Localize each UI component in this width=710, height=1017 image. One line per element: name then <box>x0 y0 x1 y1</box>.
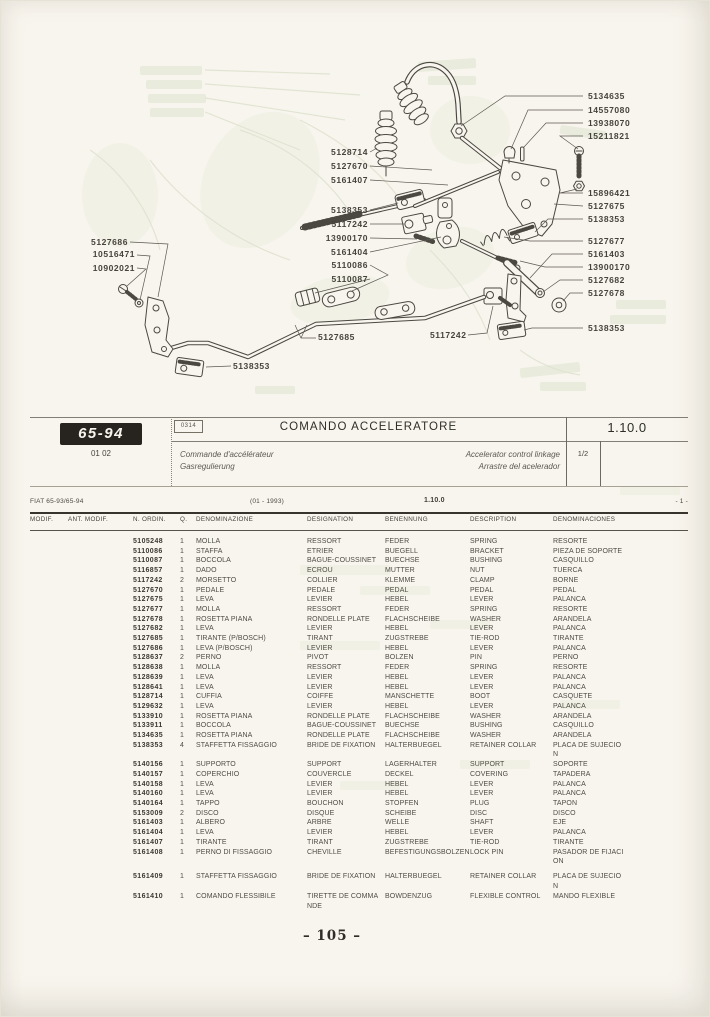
cell-q: 1 <box>180 712 196 722</box>
cell-q: 1 <box>180 892 196 911</box>
cell-ant <box>68 576 133 586</box>
cell-fr: TIRANT <box>307 634 385 644</box>
table-row: 51287141CUFFIACOIFFEMANSCHETTEBOOTCASQUE… <box>30 692 688 702</box>
section-number: 1.10.0 <box>566 420 688 435</box>
subtitle-spanish: Arrastre del acelerador <box>330 462 560 471</box>
cell-q: 4 <box>180 741 196 760</box>
cell-mod <box>30 547 68 557</box>
section-ref: 1.10.0 <box>424 497 445 504</box>
cell-q: 1 <box>180 537 196 547</box>
cell-de: SCHEIBE <box>385 809 470 819</box>
cell-n: 5105248 <box>133 537 180 547</box>
cell-n: 5134635 <box>133 731 180 741</box>
table-row: 51172422MORSETTOCOLLIERKLEMMECLAMPBORNE <box>30 576 688 586</box>
ghost-mark <box>620 487 680 495</box>
cell-n: 5161404 <box>133 828 180 838</box>
cell-es: RESORTE <box>553 605 629 615</box>
header-benennung: BENENNUNG <box>385 516 470 523</box>
cell-mod <box>30 848 68 867</box>
cell-en: PEDAL <box>470 586 553 596</box>
title-block-top-rule <box>30 417 688 418</box>
part-number-label: 5134635 <box>588 92 625 101</box>
cell-de: ZUGSTREBE <box>385 838 470 848</box>
cell-it: LEVA <box>196 702 307 712</box>
cell-q: 1 <box>180 721 196 731</box>
cell-es: PERNO <box>553 653 629 663</box>
cell-en: LEVER <box>470 673 553 683</box>
cell-de: HEBEL <box>385 624 470 634</box>
part-number-label: 5161403 <box>588 250 625 259</box>
cell-ant <box>68 828 133 838</box>
table-row: 51276861LEVA (P/BOSCH)LEVIERHEBELLEVERPA… <box>30 644 688 654</box>
cell-mod <box>30 721 68 731</box>
cell-de: HEBEL <box>385 595 470 605</box>
cell-mod <box>30 872 68 891</box>
cell-es: PALANCA <box>553 780 629 790</box>
header-q: Q. <box>180 516 196 523</box>
cell-en: WASHER <box>470 615 553 625</box>
part-number-label: 15211821 <box>588 132 630 141</box>
cell-es: PLACA DE SUJECION <box>553 872 629 891</box>
cell-fr: SUPPORT <box>307 760 385 770</box>
cell-it: COMANDO FLESSIBILE <box>196 892 307 911</box>
cell-en: LEVER <box>470 780 553 790</box>
cell-fr: TIRANT <box>307 838 385 848</box>
table-row: 51614101COMANDO FLESSIBILETIRETTE DE COM… <box>30 892 688 911</box>
cell-n: 5128714 <box>133 692 180 702</box>
cell-mod <box>30 731 68 741</box>
cell-n: 5128639 <box>133 673 180 683</box>
cell-it: BOCCOLA <box>196 721 307 731</box>
cell-q: 1 <box>180 702 196 712</box>
cell-de: HEBEL <box>385 644 470 654</box>
cell-mod <box>30 760 68 770</box>
cell-n: 5140157 <box>133 770 180 780</box>
cell-it: LEVA <box>196 595 307 605</box>
part-number-label: 5161404 <box>331 248 368 257</box>
cell-q: 1 <box>180 760 196 770</box>
cell-es: TIRANTE <box>553 838 629 848</box>
part-number-label: 5161407 <box>331 176 368 185</box>
cell-en: CLAMP <box>470 576 553 586</box>
cell-ant <box>68 586 133 596</box>
cell-fr: LEVIER <box>307 673 385 683</box>
cell-it: STAFFETTA FISSAGGIO <box>196 741 307 760</box>
cell-de: FLACHSCHEIBE <box>385 712 470 722</box>
cell-en: SUPPORT <box>470 760 553 770</box>
cell-q: 2 <box>180 576 196 586</box>
cell-mod <box>30 809 68 819</box>
cell-it: COPERCHIO <box>196 770 307 780</box>
part-number-label: 5127670 <box>331 162 368 171</box>
cell-it: LEVA <box>196 828 307 838</box>
cell-es: TAPADERA <box>553 770 629 780</box>
cell-fr: PIVOT <box>307 653 385 663</box>
cell-fr: BAGUE-COUSSINET <box>307 556 385 566</box>
cell-es: ARANDELA <box>553 712 629 722</box>
cell-n: 5127686 <box>133 644 180 654</box>
cell-ant <box>68 721 133 731</box>
table-row: 51339101ROSETTA PIANARONDELLE PLATEFLACH… <box>30 712 688 722</box>
cell-fr: RESSORT <box>307 663 385 673</box>
part-number-label: 13900170 <box>588 263 630 272</box>
model-range: FIAT 65-93/65-94 <box>30 498 84 505</box>
cell-fr: RESSORT <box>307 605 385 615</box>
cell-en: BUSHING <box>470 721 553 731</box>
header-ant-modif: ANT. MODIF. <box>68 516 133 523</box>
cell-de: FEDER <box>385 605 470 615</box>
cell-en: LEVER <box>470 702 553 712</box>
cell-es: PIEZA DE SOPORTE <box>553 547 629 557</box>
cell-q: 1 <box>180 595 196 605</box>
cell-n: 5127677 <box>133 605 180 615</box>
cell-en: PIN <box>470 653 553 663</box>
cell-en: LEVER <box>470 828 553 838</box>
cell-de: HALTERBUEGEL <box>385 741 470 760</box>
cell-n: 5140156 <box>133 760 180 770</box>
part-number-label: 5110086 <box>332 261 368 270</box>
cell-en: PLUG <box>470 799 553 809</box>
cell-en: SHAFT <box>470 818 553 828</box>
part-number-label: 14557080 <box>588 106 630 115</box>
cell-es: ARANDELA <box>553 615 629 625</box>
cell-en: COVERING <box>470 770 553 780</box>
table-row: 51276821LEVALEVIERHEBELLEVERPALANCA <box>30 624 688 634</box>
header-denominazione: DENOMINAZIONE <box>196 516 307 523</box>
part-number-label: 5127677 <box>588 237 625 246</box>
part-number-label: 5127685 <box>318 333 355 342</box>
cell-q: 1 <box>180 634 196 644</box>
cell-es: SOPORTE <box>553 760 629 770</box>
cell-en: FLEXIBLE CONTROL <box>470 892 553 911</box>
cell-mod <box>30 770 68 780</box>
cell-mod <box>30 576 68 586</box>
table-row: 51401601LEVALEVIERHEBELLEVERPALANCA <box>30 789 688 799</box>
cell-it: ROSETTA PIANA <box>196 712 307 722</box>
cell-q: 1 <box>180 663 196 673</box>
cell-mod <box>30 838 68 848</box>
model-badge: 65-94 <box>60 423 142 445</box>
cell-fr: LEVIER <box>307 828 385 838</box>
cell-n: 5129632 <box>133 702 180 712</box>
cell-ant <box>68 683 133 693</box>
cell-ant <box>68 702 133 712</box>
table-row: 51383534STAFFETTA FISSAGGIOBRIDE DE FIXA… <box>30 741 688 760</box>
cell-es: TAPON <box>553 799 629 809</box>
cell-ant <box>68 547 133 557</box>
cell-en: BRACKET <box>470 547 553 557</box>
cell-q: 1 <box>180 644 196 654</box>
cell-n: 5138353 <box>133 741 180 760</box>
cell-ant <box>68 556 133 566</box>
cell-ant <box>68 848 133 867</box>
cell-en: RETAINER COLLAR <box>470 872 553 891</box>
cell-es: PALANCA <box>553 595 629 605</box>
cell-mod <box>30 702 68 712</box>
cell-q: 1 <box>180 673 196 683</box>
cell-es: TUERCA <box>553 566 629 576</box>
cell-n: 5133910 <box>133 712 180 722</box>
cell-q: 1 <box>180 872 196 891</box>
table-row: 51614081PERNO DI FISSAGGIOCHEVILLEBEFEST… <box>30 848 688 867</box>
cell-de: HALTERBUEGEL <box>385 872 470 891</box>
cell-de: WELLE <box>385 818 470 828</box>
cell-fr: ECROU <box>307 566 385 576</box>
cell-ant <box>68 818 133 828</box>
cell-es: EJE <box>553 818 629 828</box>
cell-de: PEDAL <box>385 586 470 596</box>
cell-de: HEBEL <box>385 789 470 799</box>
cell-fr: BAGUE-COUSSINET <box>307 721 385 731</box>
part-number-label: 5110087 <box>332 275 368 284</box>
table-row: 51168571DADOECROUMUTTERNUTTUERCA <box>30 566 688 576</box>
sheet-number: 1/2 <box>566 449 600 458</box>
cell-fr: TIRETTE DE COMMANDE <box>307 892 385 911</box>
cell-n: 5161410 <box>133 892 180 911</box>
table-header-rule <box>30 530 688 531</box>
cell-mod <box>30 556 68 566</box>
cell-es: PALANCA <box>553 828 629 838</box>
cell-es: TIRANTE <box>553 634 629 644</box>
header-denominaciones: DENOMINACIONES <box>553 516 629 523</box>
table-row: 51339111BOCCOLABAGUE-COUSSINETBUECHSEBUS… <box>30 721 688 731</box>
header-n-ordin: N. ORDIN. <box>133 516 180 523</box>
table-row: 51276701PEDALEPEDALEPEDALPEDALPEDAL <box>30 586 688 596</box>
cell-mod <box>30 789 68 799</box>
diagram-labels-layer: 5134635145570801393807015211821158964215… <box>0 0 710 420</box>
table-row: 51614031ALBEROARBREWELLESHAFTEJE <box>30 818 688 828</box>
subtitle-french: Commande d'accélérateur <box>180 450 274 459</box>
part-number-label: 15896421 <box>588 189 630 198</box>
cell-it: CUFFIA <box>196 692 307 702</box>
cell-fr: LEVIER <box>307 683 385 693</box>
cell-fr: BRIDE DE FIXATION <box>307 872 385 891</box>
cell-q: 2 <box>180 809 196 819</box>
cell-it: STAFFETTA FISSAGGIO <box>196 872 307 891</box>
cell-it: ALBERO <box>196 818 307 828</box>
cell-mod <box>30 644 68 654</box>
cell-fr: COUVERCLE <box>307 770 385 780</box>
cell-fr: DISQUE <box>307 809 385 819</box>
table-row: 51614071TIRANTETIRANTZUGSTREBETIE-RODTIR… <box>30 838 688 848</box>
cell-mod <box>30 537 68 547</box>
cell-ant <box>68 760 133 770</box>
part-number-label: 5127678 <box>588 289 625 298</box>
cell-fr: LEVIER <box>307 702 385 712</box>
table-row: 51401641TAPPOBOUCHONSTOPFENPLUGTAPON <box>30 799 688 809</box>
cell-ant <box>68 780 133 790</box>
cell-ant <box>68 624 133 634</box>
cell-de: BEFESTIGUNGSBOLZEN <box>385 848 470 867</box>
cell-fr: COLLIER <box>307 576 385 586</box>
cell-it: MOLLA <box>196 663 307 673</box>
part-number-label: 5128714 <box>331 148 368 157</box>
cell-de: LAGERHALTER <box>385 760 470 770</box>
table-row: 51286381MOLLARESSORTFEDERSPRINGRESORTE <box>30 663 688 673</box>
cell-q: 1 <box>180 683 196 693</box>
cell-es: PALANCA <box>553 683 629 693</box>
cell-q: 1 <box>180 780 196 790</box>
cell-it: LEVA (P/BOSCH) <box>196 644 307 654</box>
model-sub-code: 01 02 <box>60 449 142 458</box>
cell-en: SPRING <box>470 605 553 615</box>
cell-es: CASQUILLO <box>553 721 629 731</box>
cell-ant <box>68 653 133 663</box>
cell-mod <box>30 892 68 911</box>
cell-fr: RESSORT <box>307 537 385 547</box>
cell-q: 1 <box>180 770 196 780</box>
header-designation: DESIGNATION <box>307 516 385 523</box>
cell-q: 1 <box>180 692 196 702</box>
cell-q: 1 <box>180 828 196 838</box>
cell-de: ZUGSTREBE <box>385 634 470 644</box>
cell-en: TIE-ROD <box>470 838 553 848</box>
cell-q: 1 <box>180 547 196 557</box>
cell-n: 5161407 <box>133 838 180 848</box>
cell-it: ROSETTA PIANA <box>196 615 307 625</box>
cell-ant <box>68 838 133 848</box>
table-row: 51401571COPERCHIOCOUVERCLEDECKELCOVERING… <box>30 770 688 780</box>
cell-ant <box>68 770 133 780</box>
cell-es: CASQUILLO <box>553 556 629 566</box>
cell-q: 1 <box>180 848 196 867</box>
cell-mod <box>30 692 68 702</box>
cell-n: 5161403 <box>133 818 180 828</box>
cell-en: BOOT <box>470 692 553 702</box>
cell-n: 5153009 <box>133 809 180 819</box>
cell-it: LEVA <box>196 789 307 799</box>
cell-ant <box>68 692 133 702</box>
cell-fr: RONDELLE PLATE <box>307 615 385 625</box>
table-row: 51286411LEVALEVIERHEBELLEVERPALANCA <box>30 683 688 693</box>
catalog-page: 5134635145570801393807015211821158964215… <box>0 0 710 1017</box>
cell-es: PLACA DE SUJECION <box>553 741 629 760</box>
cell-n: 5128637 <box>133 653 180 663</box>
cell-q: 1 <box>180 586 196 596</box>
cell-en: WASHER <box>470 712 553 722</box>
cell-n: 5140158 <box>133 780 180 790</box>
cell-mod <box>30 595 68 605</box>
cell-ant <box>68 731 133 741</box>
cell-de: KLEMME <box>385 576 470 586</box>
cell-de: HEBEL <box>385 780 470 790</box>
part-number-label: 5127675 <box>588 202 625 211</box>
cell-de: FLACHSCHEIBE <box>385 731 470 741</box>
table-row: 51100871BOCCOLABAGUE-COUSSINETBUECHSEBUS… <box>30 556 688 566</box>
table-row: 51346351ROSETTA PIANARONDELLE PLATEFLACH… <box>30 731 688 741</box>
cell-it: PERNO <box>196 653 307 663</box>
cell-mod <box>30 605 68 615</box>
part-number-label: 13938070 <box>588 119 630 128</box>
cell-it: PERNO DI FISSAGGIO <box>196 848 307 867</box>
cell-de: BOLZEN <box>385 653 470 663</box>
cell-en: WASHER <box>470 731 553 741</box>
cell-mod <box>30 566 68 576</box>
cell-n: 5161408 <box>133 848 180 867</box>
table-header-row: MODIF. ANT. MODIF. N. ORDIN. Q. DENOMINA… <box>30 516 688 523</box>
header-description: DESCRIPTION <box>470 516 553 523</box>
cell-it: MOLLA <box>196 605 307 615</box>
cell-mod <box>30 712 68 722</box>
cell-q: 1 <box>180 556 196 566</box>
cell-ant <box>68 712 133 722</box>
cell-n: 5133911 <box>133 721 180 731</box>
cell-it: TIRANTE (P/BOSCH) <box>196 634 307 644</box>
cell-en: BUSHING <box>470 556 553 566</box>
cell-n: 5161409 <box>133 872 180 891</box>
cell-q: 2 <box>180 653 196 663</box>
cell-es: PALANCA <box>553 644 629 654</box>
cell-fr: COIFFE <box>307 692 385 702</box>
catalog-date: (01 - 1993) <box>250 498 284 505</box>
cell-fr: CHEVILLE <box>307 848 385 867</box>
table-row: 51401581LEVALEVIERHEBELLEVERPALANCA <box>30 780 688 790</box>
table-row: 51614091STAFFETTA FISSAGGIOBRIDE DE FIXA… <box>30 872 688 891</box>
cell-it: ROSETTA PIANA <box>196 731 307 741</box>
cell-q: 1 <box>180 615 196 625</box>
cell-ant <box>68 615 133 625</box>
cell-q: 1 <box>180 731 196 741</box>
cell-fr: BOUCHON <box>307 799 385 809</box>
page-number: – 105 – <box>0 928 664 944</box>
part-number-label: 10516471 <box>93 250 135 259</box>
cell-mod <box>30 624 68 634</box>
cell-de: MANSCHETTE <box>385 692 470 702</box>
cell-it: SUPPORTO <box>196 760 307 770</box>
cell-en: LEVER <box>470 644 553 654</box>
table-row: 51286391LEVALEVIERHEBELLEVERPALANCA <box>30 673 688 683</box>
cell-en: LEVER <box>470 789 553 799</box>
cell-mod <box>30 653 68 663</box>
cell-ant <box>68 673 133 683</box>
cell-ant <box>68 537 133 547</box>
cell-es: PALANCA <box>553 673 629 683</box>
cell-ant <box>68 644 133 654</box>
cell-n: 5127682 <box>133 624 180 634</box>
cell-ant <box>68 566 133 576</box>
cell-de: STOPFEN <box>385 799 470 809</box>
table-row: 51276781ROSETTA PIANARONDELLE PLATEFLACH… <box>30 615 688 625</box>
cell-es: CASQUETE <box>553 692 629 702</box>
cell-n: 5128641 <box>133 683 180 693</box>
cell-mod <box>30 741 68 760</box>
cell-es: PALANCA <box>553 624 629 634</box>
table-row: 51286372PERNOPIVOTBOLZENPINPERNO <box>30 653 688 663</box>
cell-de: FEDER <box>385 537 470 547</box>
cell-en: SPRING <box>470 663 553 673</box>
cell-n: 5110087 <box>133 556 180 566</box>
part-number-label: 5138353 <box>233 362 270 371</box>
cell-es: RESORTE <box>553 663 629 673</box>
cell-ant <box>68 605 133 615</box>
cell-de: BUEGELL <box>385 547 470 557</box>
cell-de: MUTTER <box>385 566 470 576</box>
cell-es: MANDO FLEXIBLE <box>553 892 629 911</box>
cell-ant <box>68 809 133 819</box>
cell-es: ARANDELA <box>553 731 629 741</box>
cell-mod <box>30 799 68 809</box>
cell-fr: RONDELLE PLATE <box>307 731 385 741</box>
cell-n: 5127678 <box>133 615 180 625</box>
table-row: 51401561SUPPORTOSUPPORTLAGERHALTERSUPPOR… <box>30 760 688 770</box>
cell-it: BOCCOLA <box>196 556 307 566</box>
subtitle-german: Gasregulierung <box>180 462 235 471</box>
cell-en: TIE-ROD <box>470 634 553 644</box>
cell-ant <box>68 634 133 644</box>
cell-es: PASADOR DE FIJACION <box>553 848 629 867</box>
cell-n: 5127685 <box>133 634 180 644</box>
cell-es: PEDAL <box>553 586 629 596</box>
